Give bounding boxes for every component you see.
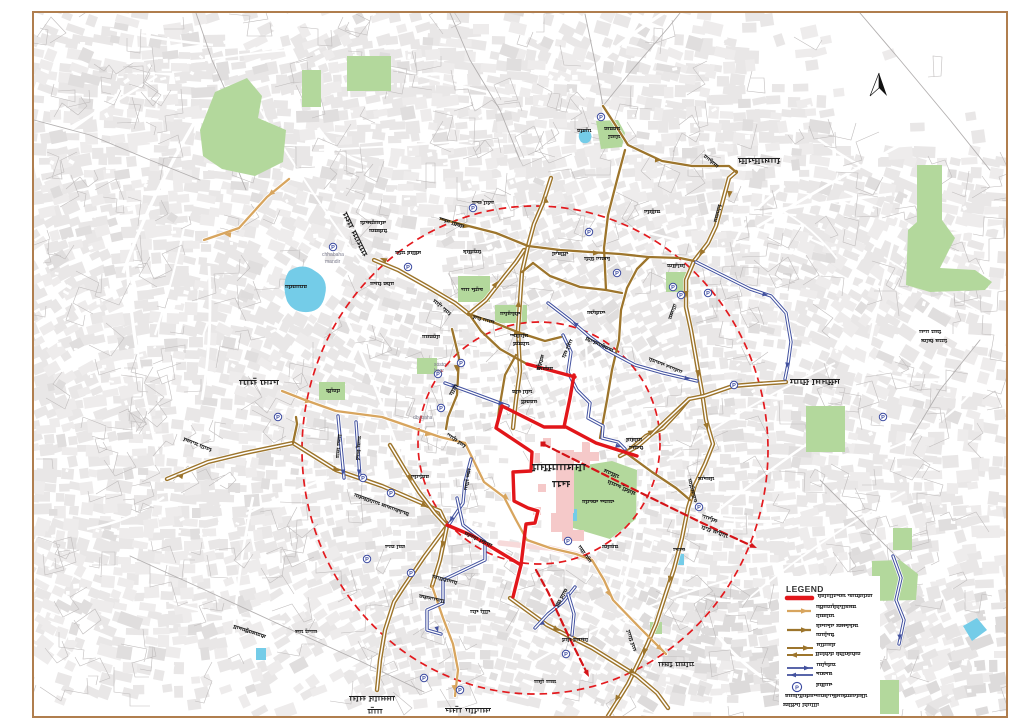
- svg-text:P: P: [615, 271, 619, 277]
- svg-text:P: P: [361, 476, 365, 482]
- svg-text:P: P: [409, 571, 413, 577]
- svg-text:P: P: [331, 245, 335, 251]
- svg-text:P: P: [422, 676, 426, 682]
- svg-text:LEGEND: LEGEND: [786, 584, 824, 594]
- svg-text:P: P: [564, 652, 568, 658]
- svg-text:P: P: [458, 688, 462, 694]
- svg-text:mandir: mandir: [325, 259, 341, 265]
- svg-text:P: P: [732, 383, 736, 389]
- svg-text:P: P: [471, 206, 475, 212]
- svg-text:P: P: [566, 539, 570, 545]
- svg-text:P: P: [795, 686, 799, 692]
- svg-text:P: P: [365, 557, 369, 563]
- svg-text:P: P: [439, 406, 443, 412]
- svg-text:P: P: [587, 230, 591, 236]
- svg-text:dbubaha: dbubaha: [413, 415, 433, 421]
- svg-text:bagr: bagr: [434, 368, 444, 374]
- svg-text:P: P: [671, 285, 675, 291]
- svg-text:P: P: [679, 293, 683, 299]
- svg-text:P: P: [406, 265, 410, 271]
- svg-text:chhabaha: chhabaha: [322, 252, 344, 258]
- svg-text:P: P: [276, 415, 280, 421]
- svg-text:P: P: [706, 291, 710, 297]
- svg-text:P: P: [389, 491, 393, 497]
- svg-text:P: P: [459, 361, 463, 367]
- svg-text:P: P: [599, 115, 603, 121]
- svg-text:P: P: [881, 415, 885, 421]
- svg-text:P: P: [697, 505, 701, 511]
